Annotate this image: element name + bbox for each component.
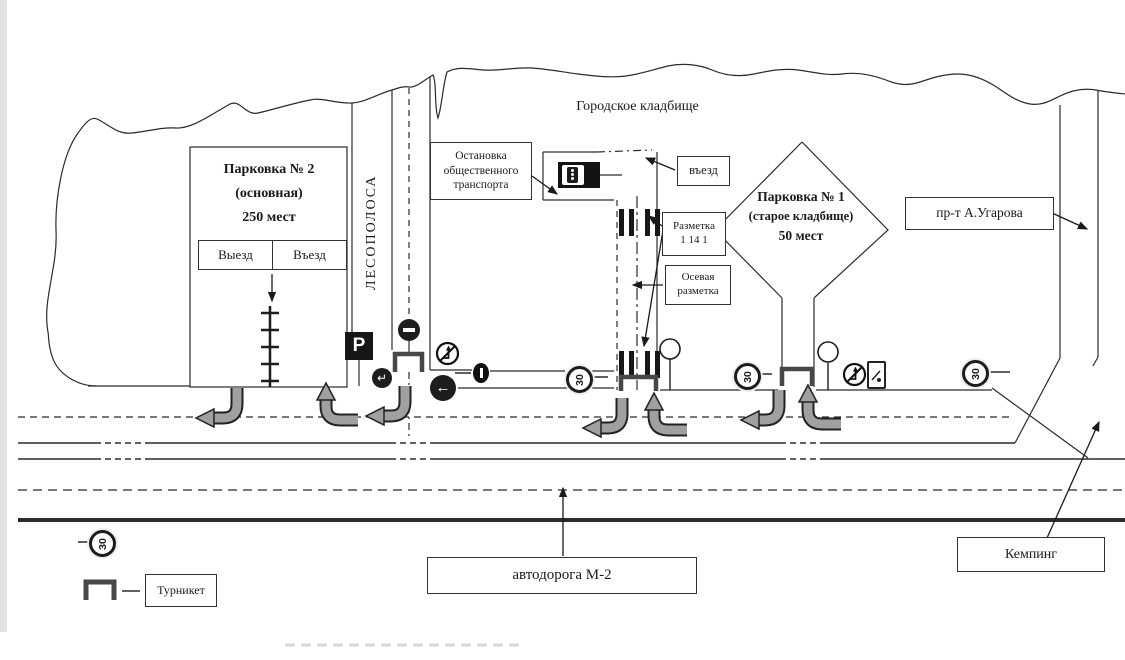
marking-line2: 1 14 1: [680, 234, 708, 248]
no-uturn-icon: [435, 341, 460, 366]
bus-stop-line2: общественного: [444, 164, 519, 178]
speed-value: 30: [970, 368, 982, 380]
turn-direction-sign: ↵: [372, 368, 392, 388]
direction-left-sign: ←: [430, 375, 456, 401]
no-entry-sign-side-view: [473, 363, 489, 383]
speed-value: 30: [97, 538, 109, 550]
highway-label-box: автодорога М-2: [427, 557, 697, 594]
parking-sign-letter: P: [353, 335, 366, 357]
marking-line1: Разметка: [673, 220, 715, 234]
camping-label-box: Кемпинг: [957, 537, 1105, 572]
left-arrow-glyph: ←: [436, 380, 451, 397]
camera-plate-icon: [871, 365, 882, 385]
parking1-capacity: 50 мест: [725, 226, 877, 246]
traffic-scheme-canvas: Городское кладбище Парковка № 2 (основна…: [0, 0, 1125, 660]
cemetery-label: Городское кладбище: [545, 98, 730, 116]
no-uturn-sign-2: [842, 362, 867, 387]
speed-limit-sign-legend: 30: [89, 530, 116, 557]
round-sign-backs: [660, 339, 838, 362]
marking-label-box: Разметка 1 14 1: [662, 212, 726, 256]
parking2-capacity: 250 мест: [195, 206, 343, 230]
parking2-entry-cell: Въезд: [272, 241, 346, 269]
parking2-title: Парковка № 2 (основная) 250 мест: [195, 158, 343, 229]
legend-turnstile-symbol: [86, 582, 114, 600]
no-uturn-sign: [435, 341, 460, 366]
avenue-label-box: пр-т А.Угарова: [905, 197, 1054, 230]
speed-value: 30: [574, 374, 586, 386]
bus-stop-line1: Остановка: [455, 149, 507, 163]
parking2-kind: (основная): [195, 182, 343, 206]
bus-stop-label-box: Остановка общественного транспорта: [430, 142, 532, 200]
turn-direction-glyph: ↵: [377, 371, 387, 386]
crosswalk-marking: [619, 209, 660, 378]
axial-line1: Осевая: [682, 271, 715, 285]
parking-sign: P: [345, 332, 373, 360]
legend-turnstile-label-box: Турникет: [145, 574, 217, 607]
no-uturn-icon-2: [842, 362, 867, 387]
bus-body: [567, 167, 578, 183]
parking1-outline: [715, 142, 888, 387]
forest-belt-label: ЛЕСОПОЛОСА: [352, 103, 392, 361]
highway-m2-lines: [18, 417, 1125, 520]
parking2-exit-entry-table: Выезд Въезд: [198, 240, 347, 270]
parking1-name: Парковка № 1: [725, 187, 877, 207]
parking1-kind: (старое кладбище): [725, 207, 877, 226]
speed-limit-sign-parking1: 30: [734, 363, 761, 390]
ugarov-avenue-road: [1060, 90, 1098, 366]
speed-value: 30: [742, 371, 754, 383]
speed-limit-sign-right: 30: [962, 360, 989, 387]
entrance-label-box: въезд: [677, 156, 730, 186]
barrier-ladder: [261, 306, 279, 387]
axial-marking-label-box: Осевая разметка: [665, 265, 731, 305]
turn-arrows-heads: [196, 383, 817, 437]
camera-plate-sign: [867, 361, 886, 389]
speed-limit-sign-center: 30: [566, 366, 593, 393]
parking2-exit-cell: Выезд: [199, 241, 272, 269]
parking2-name: Парковка № 2: [195, 158, 343, 182]
axial-line2: разметка: [677, 285, 718, 299]
bus-stop-icon: [558, 162, 600, 188]
bus-stop-line3: транспорта: [453, 178, 508, 192]
parking1-title: Парковка № 1 (старое кладбище) 50 мест: [725, 187, 877, 246]
no-entry-sign: [398, 319, 420, 341]
